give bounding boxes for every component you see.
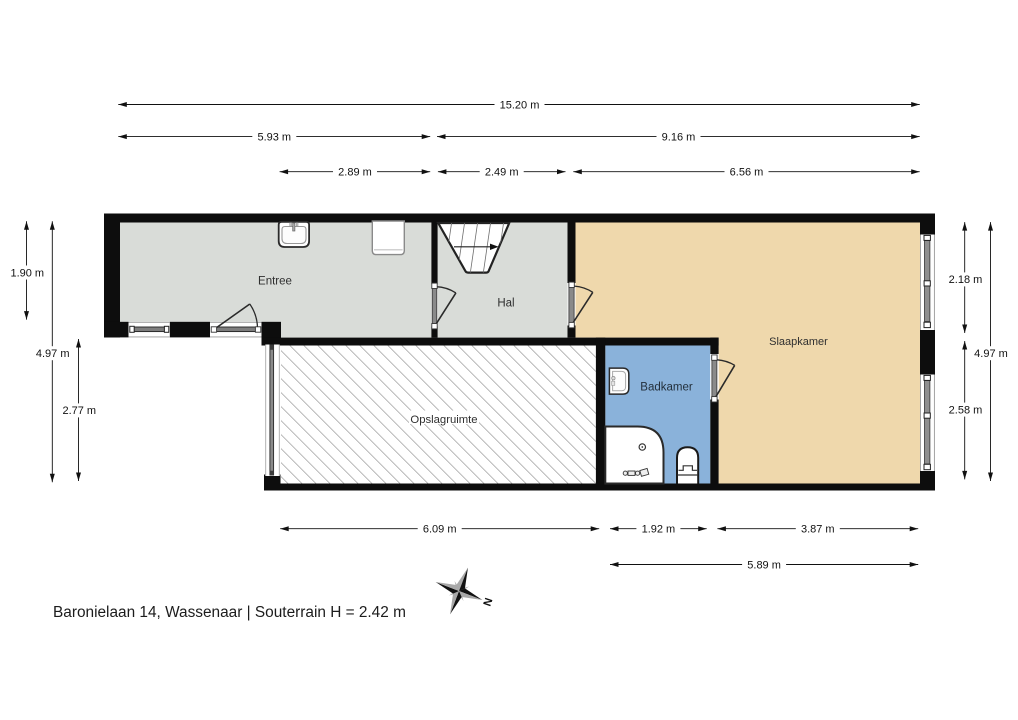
svg-text:Slaapkamer: Slaapkamer (769, 336, 828, 348)
svg-text:6.56 m: 6.56 m (730, 167, 764, 179)
svg-text:2.58 m: 2.58 m (949, 404, 983, 416)
svg-text:1.90 m: 1.90 m (10, 267, 44, 279)
svg-text:4.97 m: 4.97 m (974, 348, 1008, 360)
svg-text:Baronielaan 14, Wassenaar | So: Baronielaan 14, Wassenaar | Souterrain H… (53, 604, 406, 621)
svg-text:9.16 m: 9.16 m (662, 131, 696, 143)
svg-text:Badkamer: Badkamer (640, 381, 693, 393)
svg-text:3.87 m: 3.87 m (801, 524, 835, 536)
svg-text:2.89 m: 2.89 m (338, 167, 372, 179)
svg-text:6.09 m: 6.09 m (423, 524, 457, 536)
svg-text:2.49 m: 2.49 m (485, 167, 519, 179)
svg-text:5.93 m: 5.93 m (257, 131, 291, 143)
svg-text:Opslagruimte: Opslagruimte (410, 414, 477, 426)
svg-text:Hal: Hal (497, 298, 514, 310)
svg-text:Entree: Entree (258, 276, 292, 288)
svg-text:2.18 m: 2.18 m (949, 274, 983, 286)
svg-text:1.92 m: 1.92 m (642, 524, 676, 536)
svg-text:2.77 m: 2.77 m (62, 405, 96, 417)
svg-text:5.89 m: 5.89 m (747, 559, 781, 571)
svg-text:4.97 m: 4.97 m (36, 348, 70, 360)
svg-text:15.20 m: 15.20 m (500, 99, 540, 111)
